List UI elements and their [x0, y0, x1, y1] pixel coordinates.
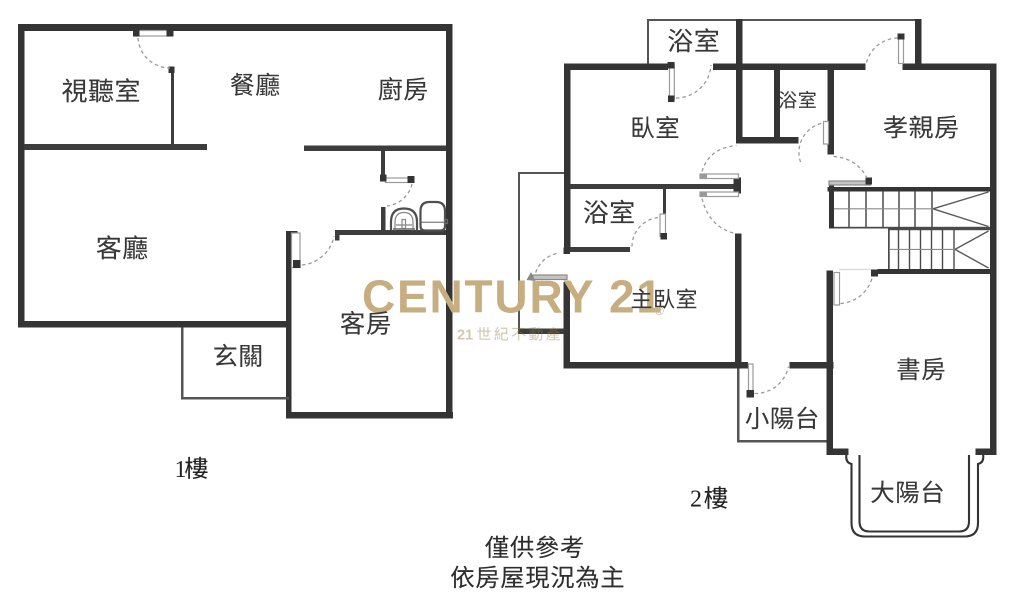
- svg-text:CENTURY 21: CENTURY 21: [362, 271, 664, 323]
- svg-text:2: 2: [690, 487, 702, 513]
- svg-text:1: 1: [175, 457, 187, 483]
- svg-text:21: 21: [457, 328, 473, 344]
